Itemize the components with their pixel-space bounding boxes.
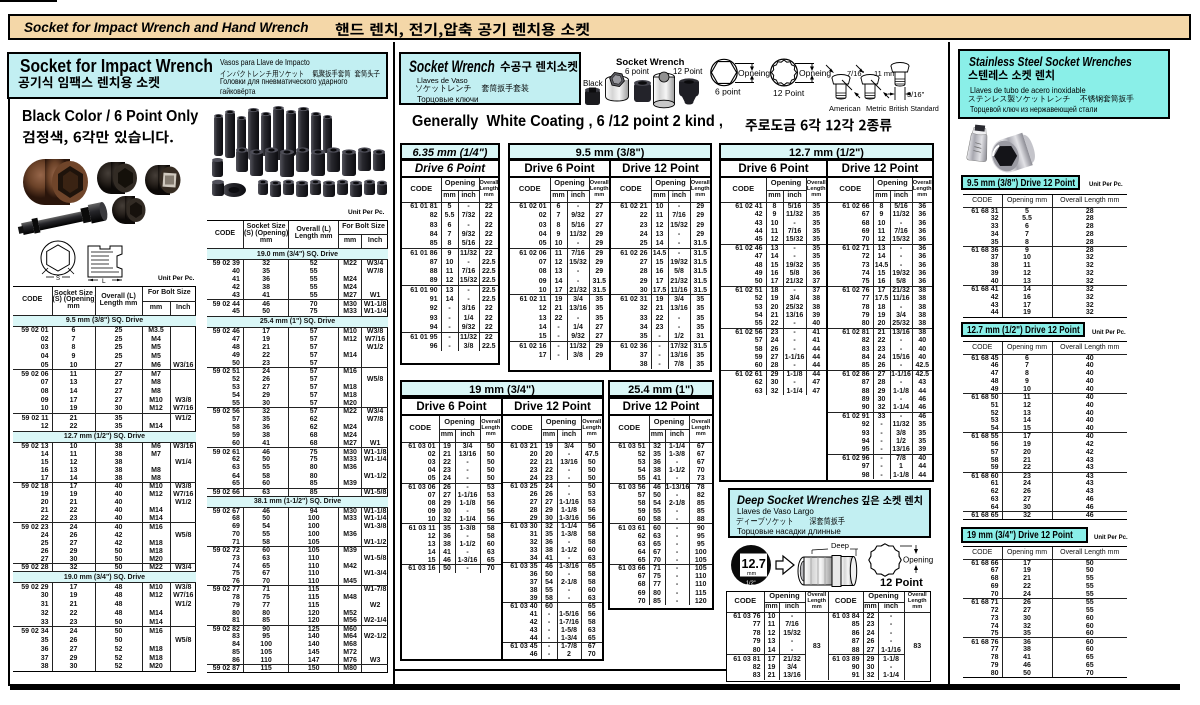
svg-text:1/2": 1/2" [746, 581, 756, 587]
svg-text:L: L [102, 278, 106, 285]
svg-text:12 Point: 12 Point [880, 577, 923, 589]
svg-text:Opneing: Opneing [738, 68, 770, 78]
svg-text:mm: mm [747, 571, 757, 577]
svg-text:12.7: 12.7 [742, 557, 766, 571]
svg-text:Opneing: Opneing [799, 68, 831, 78]
svg-text:12 Point: 12 Point [773, 88, 805, 98]
svg-text:American: American [829, 104, 861, 113]
svg-text:12 Point: 12 Point [673, 67, 703, 76]
svg-text:British Standard: British Standard [889, 106, 939, 113]
svg-text:3/16": 3/16" [907, 90, 925, 99]
svg-text:Deep: Deep [831, 541, 849, 550]
svg-text:Opening: Opening [903, 556, 933, 565]
svg-text:6 point: 6 point [625, 67, 650, 76]
svg-text:Black: Black [583, 79, 604, 88]
svg-text:Metric: Metric [866, 104, 887, 113]
svg-text:6 point: 6 point [715, 87, 741, 97]
svg-text:S: S [56, 276, 60, 282]
